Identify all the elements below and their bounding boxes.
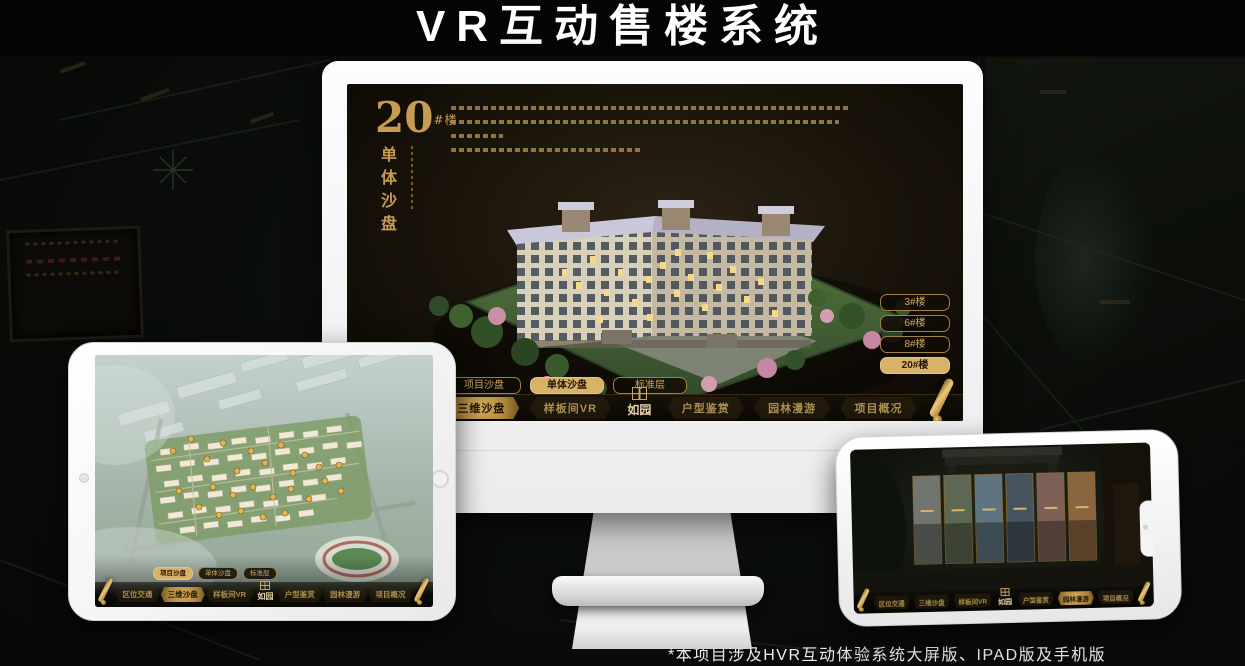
- app-logo: 如园: [998, 587, 1012, 606]
- floor-button-20[interactable]: 20#楼: [880, 357, 950, 374]
- tablet-home-button[interactable]: [431, 470, 449, 488]
- seal-icon: [632, 387, 647, 400]
- tablet-device: 项目沙盘 单体沙盘 标准层 区位交通 三维沙盘 样板间VR 如园 户型鉴赏 园林…: [68, 342, 456, 621]
- tab-single-sandbox[interactable]: 单体沙盘: [198, 567, 238, 580]
- building-number: 20: [375, 98, 433, 138]
- scroll-icon[interactable]: [101, 577, 111, 605]
- phone-screen: 区位交通 三维沙盘 样板间VR 如园 户型鉴赏 园林漫游 项目概况: [850, 443, 1154, 614]
- tablet-camera: [79, 473, 89, 483]
- nav-item-showroom-vr[interactable]: 样板间VR: [536, 398, 605, 418]
- tab-project-sandbox[interactable]: 项目沙盘: [447, 377, 521, 394]
- tab-project-sandbox[interactable]: 项目沙盘: [153, 567, 193, 580]
- nav-item-garden-tour[interactable]: 园林漫游: [1060, 591, 1092, 604]
- building-description: [451, 106, 851, 162]
- scroll-icon[interactable]: [933, 377, 951, 421]
- scroll-icon[interactable]: [417, 577, 427, 605]
- phone-notch: [1139, 500, 1153, 556]
- nav-item-location[interactable]: 区位交通: [118, 588, 156, 601]
- tab-single-sandbox[interactable]: 单体沙盘: [530, 377, 604, 394]
- nav-item-overview[interactable]: 项目概况: [1100, 591, 1132, 604]
- seal-icon: [260, 581, 270, 590]
- monitor-stand-base: [552, 576, 764, 606]
- background-plaque: [6, 226, 144, 343]
- app-logo: 如园: [257, 581, 273, 602]
- tablet-screen: 项目沙盘 单体沙盘 标准层 区位交通 三维沙盘 样板间VR 如园 户型鉴赏 园林…: [95, 355, 433, 607]
- building-headline: 20#楼 单体沙盘: [375, 98, 458, 242]
- phone-camera: [1143, 525, 1148, 530]
- page-title: VR互动售楼系统: [0, 0, 1245, 54]
- poster: VR互动售楼系统 *本项目涉及HVR互动体验系统大屏版、IPAD版及手机版: [0, 0, 1245, 666]
- tablet-sub-tabs: 项目沙盘 单体沙盘 标准层: [153, 567, 277, 580]
- headline-caption-bar: [411, 146, 413, 210]
- nav-item-showroom-vr[interactable]: 样板间VR: [209, 588, 250, 601]
- nav-item-3d-sandbox[interactable]: 三维沙盘: [915, 595, 947, 608]
- nav-item-location[interactable]: 区位交通: [876, 596, 908, 609]
- monitor-stand-neck: [572, 501, 752, 649]
- seal-icon: [1000, 588, 1009, 596]
- floor-button-3[interactable]: 3#楼: [880, 294, 950, 311]
- nav-item-3d-sandbox[interactable]: 三维沙盘: [449, 398, 513, 418]
- floor-button-8[interactable]: 8#楼: [880, 336, 950, 353]
- nav-item-garden-tour[interactable]: 园林漫游: [760, 398, 824, 418]
- nav-item-showroom-vr[interactable]: 样板间VR: [955, 594, 990, 607]
- scroll-icon[interactable]: [858, 587, 868, 611]
- app-logo: 如园: [627, 387, 651, 418]
- phone-device: 区位交通 三维沙盘 样板间VR 如园 户型鉴赏 园林漫游 项目概况: [835, 429, 1183, 627]
- building-subtitle: 单体沙盘: [375, 146, 399, 242]
- floor-selector: 3#楼 6#楼 8#楼 20#楼: [880, 294, 950, 374]
- scroll-icon[interactable]: [1139, 581, 1149, 605]
- nav-item-overview[interactable]: 项目概况: [372, 588, 410, 601]
- nav-item-overview[interactable]: 项目概况: [847, 398, 911, 418]
- nav-item-floorplans[interactable]: 户型鉴赏: [281, 588, 319, 601]
- nav-item-garden-tour[interactable]: 园林漫游: [326, 588, 364, 601]
- floor-button-6[interactable]: 6#楼: [880, 315, 950, 332]
- nav-item-floorplans[interactable]: 户型鉴赏: [674, 398, 738, 418]
- nav-item-3d-sandbox[interactable]: 三维沙盘: [164, 588, 202, 601]
- nav-item-floorplans[interactable]: 户型鉴赏: [1020, 592, 1052, 605]
- tab-standard-floor[interactable]: 标准层: [243, 567, 277, 580]
- tablet-bottom-nav: 区位交通 三维沙盘 样板间VR 如园 户型鉴赏 园林漫游 项目概况: [95, 582, 433, 607]
